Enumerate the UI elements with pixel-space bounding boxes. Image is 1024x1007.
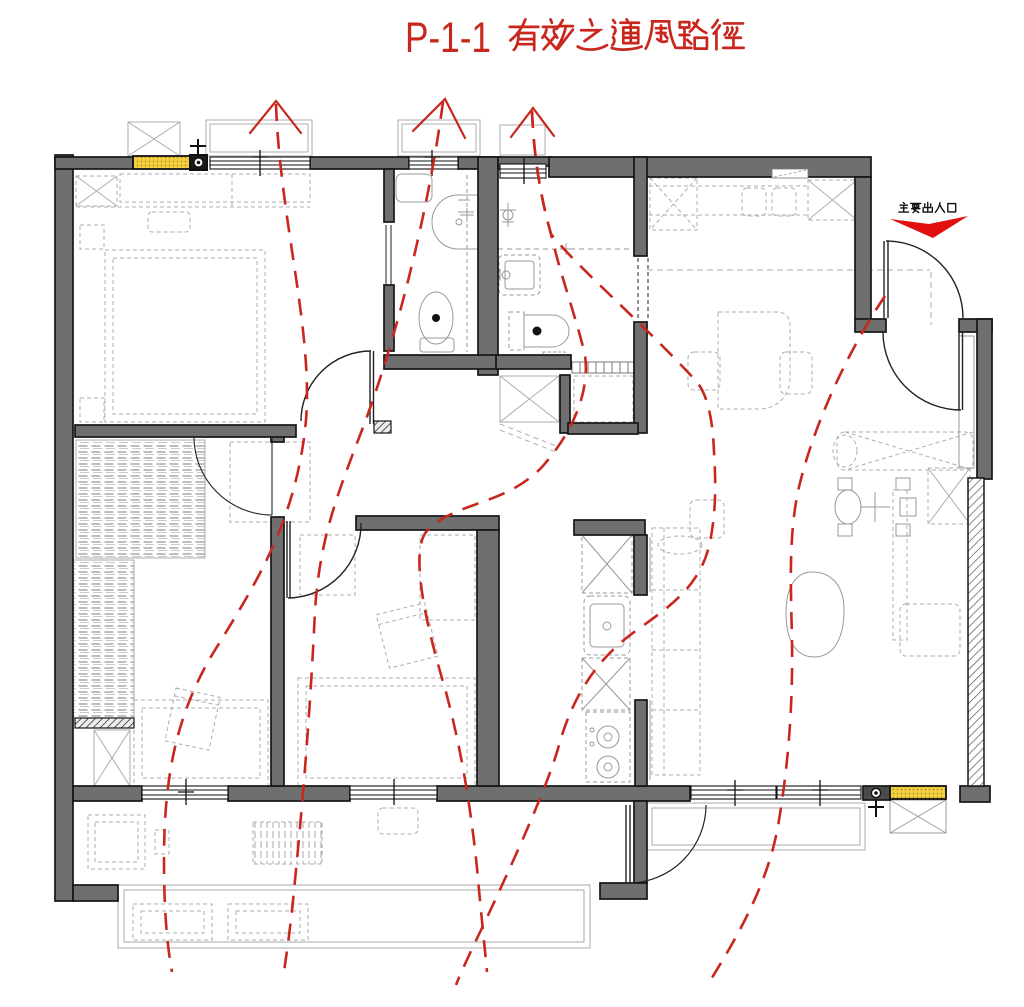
svg-text:P-1-1: P-1-1: [405, 14, 491, 62]
